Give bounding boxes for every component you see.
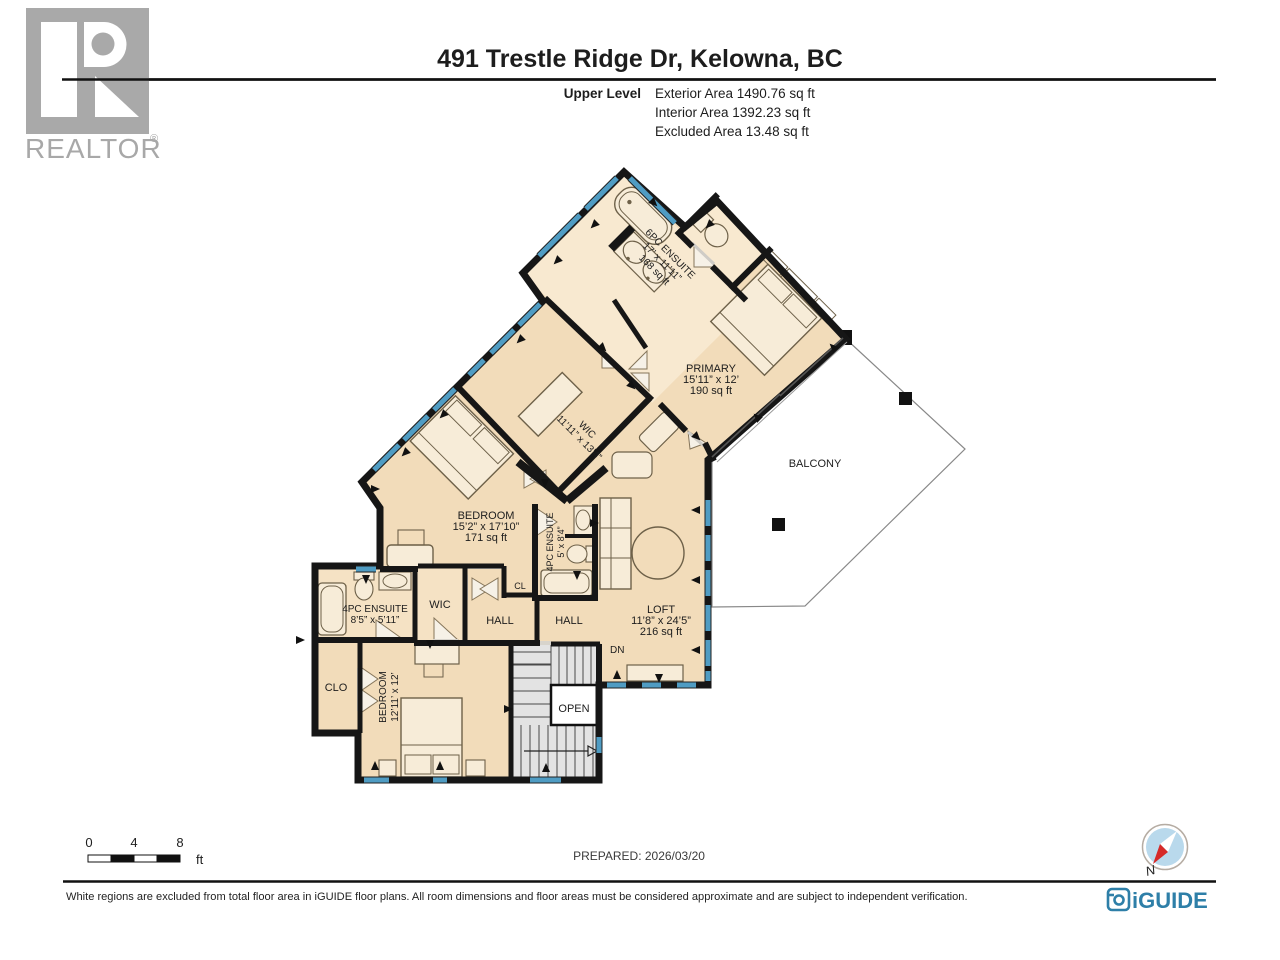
svg-text:4: 4	[130, 835, 137, 850]
svg-text:171 sq ft: 171 sq ft	[465, 532, 507, 544]
svg-text:BALCONY: BALCONY	[789, 458, 842, 470]
svg-text:HALL: HALL	[555, 615, 583, 627]
svg-text:WIC: WIC	[429, 599, 450, 611]
svg-text:iGUIDE: iGUIDE	[1132, 888, 1208, 913]
svg-text:REALTOR: REALTOR	[25, 133, 162, 164]
svg-text:491 Trestle Ridge Dr, Kelowna,: 491 Trestle Ridge Dr, Kelowna, BC	[437, 45, 843, 73]
svg-text:PREPARED: 2026/03/20: PREPARED: 2026/03/20	[573, 849, 705, 863]
svg-text:8’5” x 5’11”: 8’5” x 5’11”	[351, 615, 400, 626]
svg-text:Exterior Area 1490.76 sq ft: Exterior Area 1490.76 sq ft	[655, 86, 815, 101]
svg-text:216 sq ft: 216 sq ft	[640, 626, 682, 638]
svg-text:0: 0	[85, 835, 92, 850]
svg-text:190 sq ft: 190 sq ft	[690, 385, 732, 397]
svg-text:BEDROOM: BEDROOM	[378, 671, 389, 723]
svg-text:White regions are excluded fro: White regions are excluded from total fl…	[66, 891, 968, 903]
svg-text:8: 8	[176, 835, 183, 850]
svg-text:®: ®	[150, 133, 158, 145]
svg-text:Excluded Area 13.48 sq ft: Excluded Area 13.48 sq ft	[655, 124, 809, 139]
svg-text:DN: DN	[610, 645, 624, 656]
svg-text:Interior Area 1392.23 sq ft: Interior Area 1392.23 sq ft	[655, 105, 811, 120]
svg-text:OPEN: OPEN	[558, 703, 589, 715]
svg-text:4PC ENSUITE: 4PC ENSUITE	[545, 512, 555, 571]
svg-text:5’ x 8’4”: 5’ x 8’4”	[556, 526, 566, 557]
svg-text:CLO: CLO	[325, 682, 348, 694]
svg-text:ft: ft	[196, 852, 204, 867]
svg-text:Upper Level: Upper Level	[564, 86, 641, 101]
svg-text:CL: CL	[514, 581, 526, 591]
svg-text:12’11’ x 12’: 12’11’ x 12’	[390, 672, 401, 721]
svg-text:HALL: HALL	[486, 615, 514, 627]
svg-text:4PC ENSUITE: 4PC ENSUITE	[342, 604, 408, 615]
